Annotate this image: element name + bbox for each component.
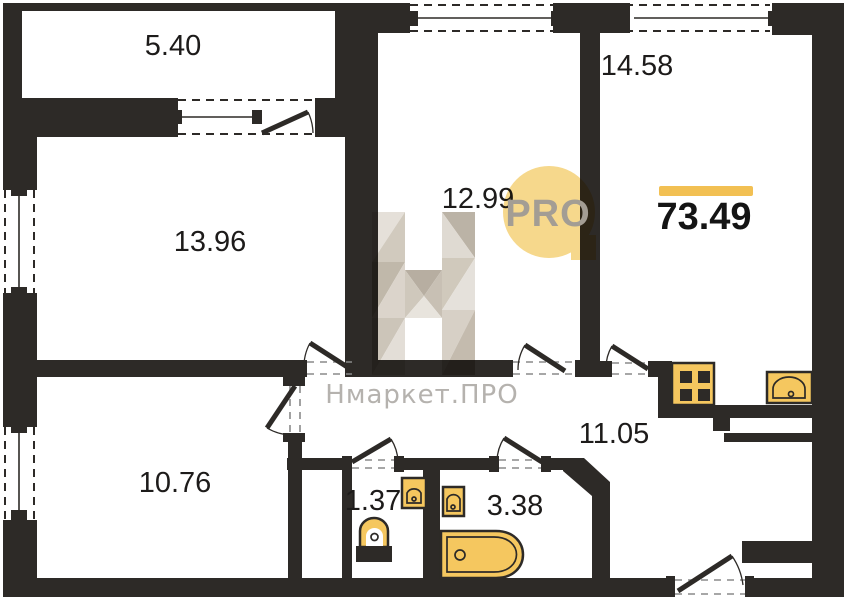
room-label-wc: 1.37: [345, 485, 401, 517]
floor-plan: 5.40 13.96 12.99 14.58 10.76 11.05 1.37 …: [0, 0, 844, 600]
total-area: 73.49: [656, 186, 753, 238]
room-label-14-58: 14.58: [601, 50, 674, 82]
brand-watermark-text: Нмаркет.ПРО: [325, 380, 518, 410]
room-label-10-76: 10.76: [139, 467, 212, 499]
room-label-bathroom: 3.38: [487, 490, 543, 522]
wc-sink-icon: [402, 478, 426, 508]
bathtub-icon: [441, 531, 523, 578]
total-area-value: 73.49: [656, 196, 751, 238]
room-label-13-96: 13.96: [174, 226, 247, 258]
total-area-underline: [659, 186, 753, 196]
room-label-loggia: 5.40: [145, 30, 201, 62]
stove-icon: [672, 363, 714, 405]
room-label-11-05: 11.05: [579, 418, 649, 450]
bath-sink-icon: [443, 487, 464, 516]
kitchen-sink-icon: [767, 372, 812, 403]
pro-badge-text: PRO: [505, 193, 590, 235]
pro-badge-tab: [571, 235, 596, 260]
pro-badge-watermark: PRO: [503, 166, 596, 260]
toilet-icon: [356, 518, 392, 562]
floor-plan-drawing: 5.40 13.96 12.99 14.58 10.76 11.05 1.37 …: [0, 0, 844, 600]
h-logo-watermark: [372, 212, 475, 375]
